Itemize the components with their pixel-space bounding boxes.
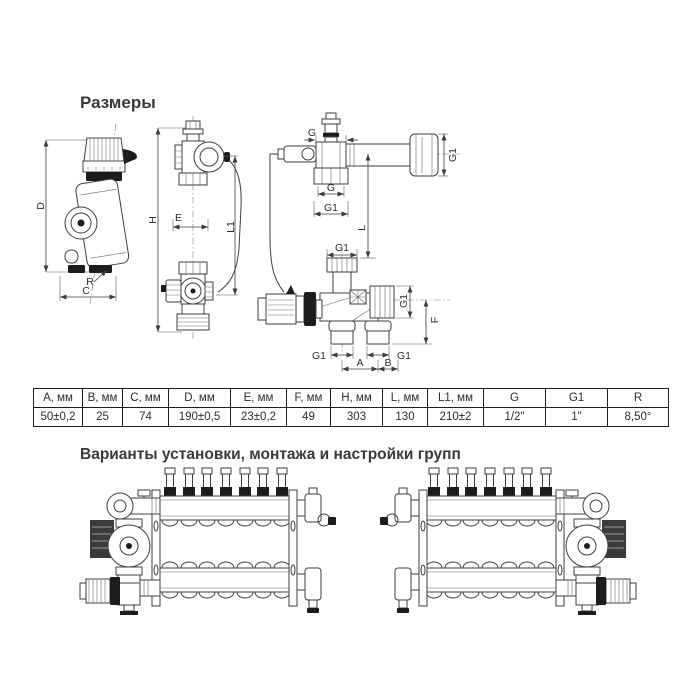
- table-value-cell: 303: [331, 408, 383, 427]
- table-header-cell: A, мм: [34, 389, 83, 408]
- drawing-front-view: H E: [147, 116, 241, 340]
- table-header-cell: B, мм: [83, 389, 123, 408]
- table-value-cell: 50±0,2: [34, 408, 83, 427]
- table-value-cell: 210±2: [428, 408, 484, 427]
- dim-label-g-top: G: [308, 127, 316, 139]
- dim-label-b: B: [384, 357, 391, 369]
- capillary-tube-2: [270, 154, 284, 292]
- table-header-cell: H, мм: [331, 389, 383, 408]
- dim-label-g1-outlet: G1: [398, 294, 410, 308]
- dim-label-g1-port-left: G1: [312, 350, 326, 362]
- drawing-piping-view: G G1 G: [258, 112, 460, 372]
- table-value-cell: 23±0,2: [231, 408, 287, 427]
- thermostatic-head-icon: [83, 138, 137, 181]
- dim-label-l: L: [356, 225, 368, 231]
- dim-label-g-union: G: [327, 182, 335, 194]
- lower-valve-assembly: [161, 262, 213, 330]
- manifold-right-variant: [380, 468, 636, 615]
- air-vent-icon: [322, 113, 340, 142]
- table-value-cell: 1": [546, 408, 608, 427]
- dimension-drawings: D: [30, 108, 480, 380]
- table-header-cell: F, мм: [287, 389, 331, 408]
- table-header-cell: C, мм: [123, 389, 169, 408]
- drawing-side-view: D: [35, 124, 137, 304]
- pump-group: [80, 490, 160, 615]
- dim-label-g1-port-right: G1: [397, 350, 411, 362]
- table-header-cell: G: [484, 389, 546, 408]
- dim-label-g1-inlet: G1: [335, 242, 349, 254]
- table-header-cell: G1: [546, 389, 608, 408]
- dimensions-table: A, мм B, мм C, мм D, мм E, мм F, мм H, м…: [33, 388, 669, 427]
- table-value-cell: 74: [123, 408, 169, 427]
- table-value-cell: 190±0,5: [169, 408, 231, 427]
- dim-label-g1-union: G1: [324, 202, 338, 214]
- dim-label-l1: L1: [225, 221, 237, 233]
- table-value-cell: 130: [383, 408, 428, 427]
- table-header-cell: L, мм: [383, 389, 428, 408]
- table-value-cell: 49: [287, 408, 331, 427]
- table-value-cell: 8,50°: [608, 408, 669, 427]
- dim-label-h: H: [147, 216, 159, 224]
- dim-label-f: F: [429, 317, 441, 323]
- valve-body: [65, 178, 130, 273]
- table-header-cell: D, мм: [169, 389, 231, 408]
- upper-valve-assembly: [175, 121, 230, 185]
- dim-label-g1-coupling: G1: [447, 148, 459, 162]
- table-header-row: A, мм B, мм C, мм D, мм E, мм F, мм H, м…: [34, 389, 669, 408]
- table-value-row: 50±0,2 25 74 190±0,5 23±0,2 49 303 130 2…: [34, 408, 669, 427]
- drain-valve: [297, 568, 321, 613]
- dim-label-d: D: [35, 202, 47, 210]
- dim-label-e: E: [175, 212, 182, 224]
- section-title-variants: Варианты установки, монтажа и настройки …: [80, 446, 461, 464]
- table-header-cell: L1, мм: [428, 389, 484, 408]
- table-value-cell: 25: [83, 408, 123, 427]
- manifold-variant-drawings: [54, 464, 694, 634]
- lower-valve-group: [258, 258, 394, 344]
- table-value-cell: 1/2": [484, 408, 546, 427]
- manifold-left-variant: [80, 468, 336, 615]
- vent-assembly: [297, 488, 336, 526]
- dim-label-a: A: [356, 357, 363, 369]
- dim-label-c: C: [82, 285, 90, 297]
- table-header-cell: R: [608, 389, 669, 408]
- table-header-cell: E, мм: [231, 389, 287, 408]
